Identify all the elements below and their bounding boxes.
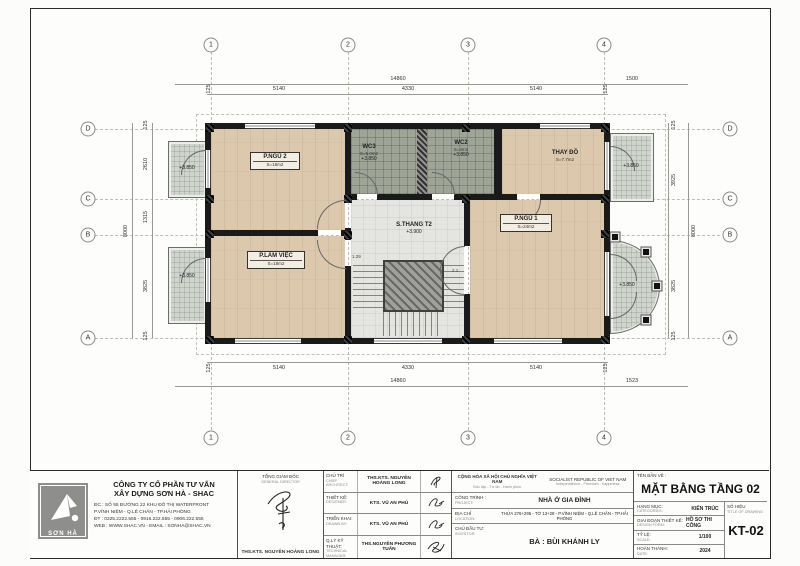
company-address-line1: ĐC : SỐ 55 ĐƯỜNG 22 KHU ĐÔ THỊ WATERFRON… (94, 502, 234, 509)
dim-left-seg-4: 3825 (143, 280, 149, 292)
drawing-row-date: HOÀN THÀNH:DATE: 2024 (634, 545, 724, 558)
dim-top-overall: 14860 (390, 76, 405, 82)
row-value: HỒ SƠ THI CÔNG (686, 516, 724, 529)
company-address-line2: P.VĨNH NIỆM - Q.LÊ CHÂN - TP.HẢI PHÒNG (94, 509, 234, 516)
column (462, 195, 470, 203)
stair-note-1: 1.29 (352, 254, 361, 259)
room-name: P.NGỦ 2 (253, 154, 297, 161)
project-section: CỘNG HÒA XÃ HỘI CHỦ NGHĨA VIỆT NAM Độc l… (452, 471, 634, 558)
nation-vn-line2: Độc lập - Tự do - Hạnh phúc (452, 485, 543, 490)
company-name-line2: XÂY DỰNG SƠN HÀ - SHAC (94, 489, 234, 498)
room-name: P.LÀM VIỆC (250, 253, 302, 260)
row-sublabel: DATE: (637, 552, 686, 557)
dim-line-bottom-segments (207, 362, 608, 363)
company-web-email: WEB : WWW.SHAC.VN - EMAIL : SONHA@SHAC.V… (94, 523, 234, 530)
stair-note-2: 2.1 (452, 268, 458, 273)
dim-bot-seg-3: 4330 (402, 365, 414, 371)
stair-flight-bottom (383, 308, 440, 336)
room-name: P.NGỦ 1 (503, 216, 549, 223)
level-balcony-right: +3.850 (617, 163, 645, 169)
grid-bubble-col1-bottom: 1 (204, 431, 219, 446)
grid-bubble-col3-bottom: 3 (461, 431, 476, 446)
dim-top-seg-3: 4330 (402, 86, 414, 92)
drawing-title-section: TÊN BẢN VẼ : MẶT BẰNG TẦNG 02 HẠNG MỤC:C… (634, 471, 767, 558)
room-label-pngu2: P.NGỦ 2 S=18m2 (250, 152, 300, 170)
dim-bot-seg-1: 125 (206, 363, 212, 372)
round-balcony-column-2 (643, 249, 649, 255)
ten-ban-ve-label: TÊN BẢN VẼ : (637, 473, 666, 479)
room-name: WC2 (441, 140, 481, 147)
role-signature (421, 536, 451, 558)
window-top-thaydo (540, 123, 590, 129)
column (206, 336, 214, 344)
wall-wc2-thaydo (494, 123, 502, 194)
dim-left-seg-5: 125 (143, 331, 149, 340)
nation-en-line2: Independence - Freedom - happiness (543, 482, 634, 487)
column (344, 231, 352, 239)
column (206, 230, 214, 238)
role-name: THS.KTS. NGUYỄN HOÀNG LONG (358, 471, 421, 492)
role-name: KTS. VŨ AN PHÚ (358, 493, 421, 514)
dim-top-seg-5: 125 (603, 84, 609, 93)
grid-bubble-col2-top: 2 (341, 38, 356, 53)
drawing-sheet: 1 2 3 4 1 2 3 4 D C B A D C B A 14860 15… (0, 0, 800, 566)
drawing-row-scale: TỶ LỆ:SCALE: 1/100 (634, 531, 724, 545)
window-bottom-pngu1 (494, 338, 562, 344)
room-label-stair: S.THANG T2 +3.900 (384, 222, 444, 236)
dim-right-seg-4: 125 (671, 331, 677, 340)
dim-bottom-overall: 14860 (390, 378, 405, 384)
director-name: THS.KTS. NGUYỄN HOÀNG LONG (238, 550, 323, 556)
room-name: THAY ĐỒ (539, 150, 591, 157)
project-sublabel: PROJECT: (455, 501, 496, 506)
room-area: S=7.7m2 (539, 157, 591, 162)
dim-line-top-segments (207, 94, 608, 95)
dim-bot-seg-5: 125 (603, 363, 609, 372)
stair-core-void (383, 260, 444, 312)
grid-bubble-col4-bottom: 4 (597, 431, 612, 446)
column (601, 124, 609, 132)
dim-top-seg-2: 5140 (273, 86, 285, 92)
drawing-title: MẶT BẰNG TẦNG 02 (634, 482, 767, 496)
room-label-wc2: WC2 S=4m2 +3.850 (441, 140, 481, 159)
dim-top-seg-1: 125 (206, 84, 212, 93)
project-value: NHÀ Ở GIA ĐÌNH (496, 493, 633, 508)
wall-wc-bottom-b (377, 194, 432, 200)
round-balcony-column-4 (643, 317, 649, 323)
title-block: SƠN HÀ CÔNG TY CỔ PHẦN TƯ VẤN XÂY DỰNG S… (30, 470, 769, 558)
grid-bubble-rowD-right: D (723, 122, 738, 137)
so-hieu-sublabel: TITLE OF DRAWING (727, 510, 763, 515)
location-value: THỬA 276+295 - TỜ 13+28 - P.VĨNH NIỆM - … (496, 509, 633, 523)
grid-bubble-rowB-left: B (81, 228, 96, 243)
dim-line-top-overall (175, 84, 688, 85)
column (462, 124, 470, 132)
nation-header: CỘNG HÒA XÃ HỘI CHỦ NGHĨA VIỆT NAM Độc l… (452, 471, 633, 493)
role-signature (421, 514, 451, 535)
wall-grid2-lower (345, 266, 351, 344)
dim-left-seg-2: 2610 (143, 158, 149, 170)
dim-right-seg-1: 125 (671, 120, 677, 129)
column (601, 336, 609, 344)
room-level: +3.850 (350, 156, 388, 163)
row-value: KIẾN TRÚC (686, 502, 724, 515)
dim-line-right-segments (668, 123, 669, 338)
level-balcony-round: +3.850 (613, 282, 641, 288)
role-row-technical-manager: Q.LÝ KỸ THUẬT:TECHNICAL MANAGER: THS.NGU… (324, 536, 451, 558)
drawing-row-category: HẠNG MỤC:CATEGORIES: KIẾN TRÚC (634, 502, 724, 516)
role-row-drawn-by: TRIỂN KHAI:DRAWN BY: KTS. VŨ AN PHÚ (324, 514, 451, 536)
round-balcony-column-1 (612, 234, 618, 240)
grid-bubble-rowD-left: D (81, 122, 96, 137)
role-sublabel: DRAWN BY: (326, 522, 356, 527)
role-row-designer: THIẾT KẾ:DESIGNER: KTS. VŨ AN PHÚ (324, 493, 451, 515)
dim-bot-seg-2: 5140 (273, 365, 285, 371)
sonha-logo-text: SƠN HÀ (37, 531, 89, 537)
dim-left-seg-1: 125 (143, 120, 149, 129)
dim-bot-seg-4: 5140 (530, 365, 542, 371)
column (206, 124, 214, 132)
room-name: WC3 (350, 144, 388, 151)
window-top-pngu2 (245, 123, 315, 129)
investor-value: BÀ : BÙI KHÁNH LY (496, 524, 633, 558)
role-name: THS.NGUYỄN PHƯƠNG TUẤN (358, 536, 421, 558)
wall-stair-pngu1-upper (464, 200, 470, 246)
role-signature (421, 471, 451, 492)
company-name-line1: CÔNG TY CỔ PHẦN TƯ VẤN (94, 480, 234, 489)
so-hieu-label: SỐ HIỆU (727, 504, 746, 510)
company-section: SƠN HÀ CÔNG TY CỔ PHẦN TƯ VẤN XÂY DỰNG S… (30, 471, 238, 558)
role-sublabel: TECHNICAL MANAGER: (326, 549, 356, 558)
role-row-chief-architect: CHỦ TRÌCHIEF ARCHITECT: THS.KTS. NGUYỄN … (324, 471, 451, 493)
dim-top-seg-4: 5140 (530, 86, 542, 92)
dim-line-left-segments (152, 123, 153, 338)
row-value: 2024 (686, 545, 724, 558)
room-label-wc3: WC3 S=5.0m2 +3.850 (350, 144, 388, 163)
room-area: S=18m2 (250, 260, 302, 267)
grid-bubble-rowB-right: B (723, 228, 738, 243)
room-name: S.THANG T2 (384, 222, 444, 229)
nation-vn-line1: CỘNG HÒA XÃ HỘI CHỦ NGHĨA VIỆT NAM (452, 474, 543, 485)
dim-left-seg-3: 1315 (143, 211, 149, 223)
row-value: 1/100 (686, 531, 724, 544)
wall-pngu2-plamviec-a (205, 230, 318, 236)
column (206, 195, 214, 203)
grid-bubble-col2-bottom: 2 (341, 431, 356, 446)
director-signature (238, 484, 324, 536)
project-row: CÔNG TRÌNH :PROJECT: NHÀ Ở GIA ĐÌNH (452, 493, 633, 509)
drawing-number: KT-02 (725, 523, 767, 538)
room-label-thaydo: THAY ĐỒ S=7.7m2 (539, 150, 591, 162)
column (344, 336, 352, 344)
room-level: +3.900 (384, 229, 444, 236)
grid-bubble-rowA-left: A (81, 331, 96, 346)
grid-bubble-col1-top: 1 (204, 38, 219, 53)
dim-right-seg-3: 3825 (671, 280, 677, 292)
column (344, 124, 352, 132)
room-level: +3.850 (441, 152, 481, 159)
roles-section: CHỦ TRÌCHIEF ARCHITECT: THS.KTS. NGUYỄN … (324, 471, 452, 558)
column (601, 230, 609, 238)
dim-bottom-right: 1523 (626, 378, 638, 384)
column (601, 195, 609, 203)
drawing-row-phase: GIAI ĐOẠN THIẾT KẾ:DESIGN FORM: HỒ SƠ TH… (634, 516, 724, 530)
dim-line-bottom-overall (175, 386, 688, 387)
row-sublabel: CATEGORIES: (637, 509, 686, 514)
dim-right-seg-2: 3925 (671, 174, 677, 186)
room-area: S=24m2 (503, 223, 549, 230)
window-bottom-stair (374, 338, 442, 344)
role-sublabel: DESIGNER: (326, 500, 356, 505)
row-sublabel: DESIGN FORM: (637, 523, 686, 528)
role-name: KTS. VŨ AN PHÚ (358, 514, 421, 535)
room-label-pngu1: P.NGỦ 1 S=24m2 (500, 214, 552, 232)
grid-bubble-rowC-right: C (723, 192, 738, 207)
role-label: Q.LÝ KỸ THUẬT: (326, 538, 356, 549)
level-balcony-left-lower: +3.850 (173, 273, 201, 279)
round-balcony-column-3 (654, 283, 660, 289)
column (462, 336, 470, 344)
dim-right-overall: 8000 (691, 225, 697, 237)
dim-line-right-overall (688, 123, 689, 338)
shaft-wc3-wc2 (417, 129, 427, 194)
location-row: ĐỊA CHỈLOCATION: THỬA 276+295 - TỜ 13+28… (452, 509, 633, 524)
dim-left-overall: 8000 (123, 225, 129, 237)
role-signature (421, 493, 451, 514)
role-sublabel: CHIEF ARCHITECT: (326, 479, 356, 488)
room-label-plamviec: P.LÀM VIỆC S=18m2 (247, 251, 305, 269)
investor-row: CHỦ ĐẦU TƯ:INVESTOR: BÀ : BÙI KHÁNH LY (452, 524, 633, 558)
sonha-logo: SƠN HÀ (37, 482, 89, 540)
floor-plan: 1 2 3 4 1 2 3 4 D C B A D C B A 14860 15… (0, 0, 800, 470)
grid-bubble-rowA-right: A (723, 331, 738, 346)
wall-wc-bottom-d (540, 194, 610, 200)
director-section: TỔNG GIÁM ĐỐC GENERAL DIRECTOR THS.KTS. … (238, 471, 324, 558)
stair-treads-left (353, 262, 383, 308)
company-phone: ĐT : 0225.2222.555 - 0916.222.555 - 0906… (94, 516, 234, 523)
dim-line-left-overall (132, 123, 133, 338)
investor-sublabel: INVESTOR: (455, 532, 496, 537)
grid-bubble-rowC-left: C (81, 192, 96, 207)
level-balcony-left-upper: +3.850 (173, 165, 201, 171)
row-sublabel: SCALE: (637, 538, 686, 543)
location-sublabel: LOCATION: (455, 517, 496, 522)
grid-bubble-col3-top: 3 (461, 38, 476, 53)
room-area: S=18m2 (253, 161, 297, 168)
window-bottom-plamviec (235, 338, 301, 344)
grid-bubble-col4-top: 4 (597, 38, 612, 53)
dim-top-right: 1500 (626, 76, 638, 82)
